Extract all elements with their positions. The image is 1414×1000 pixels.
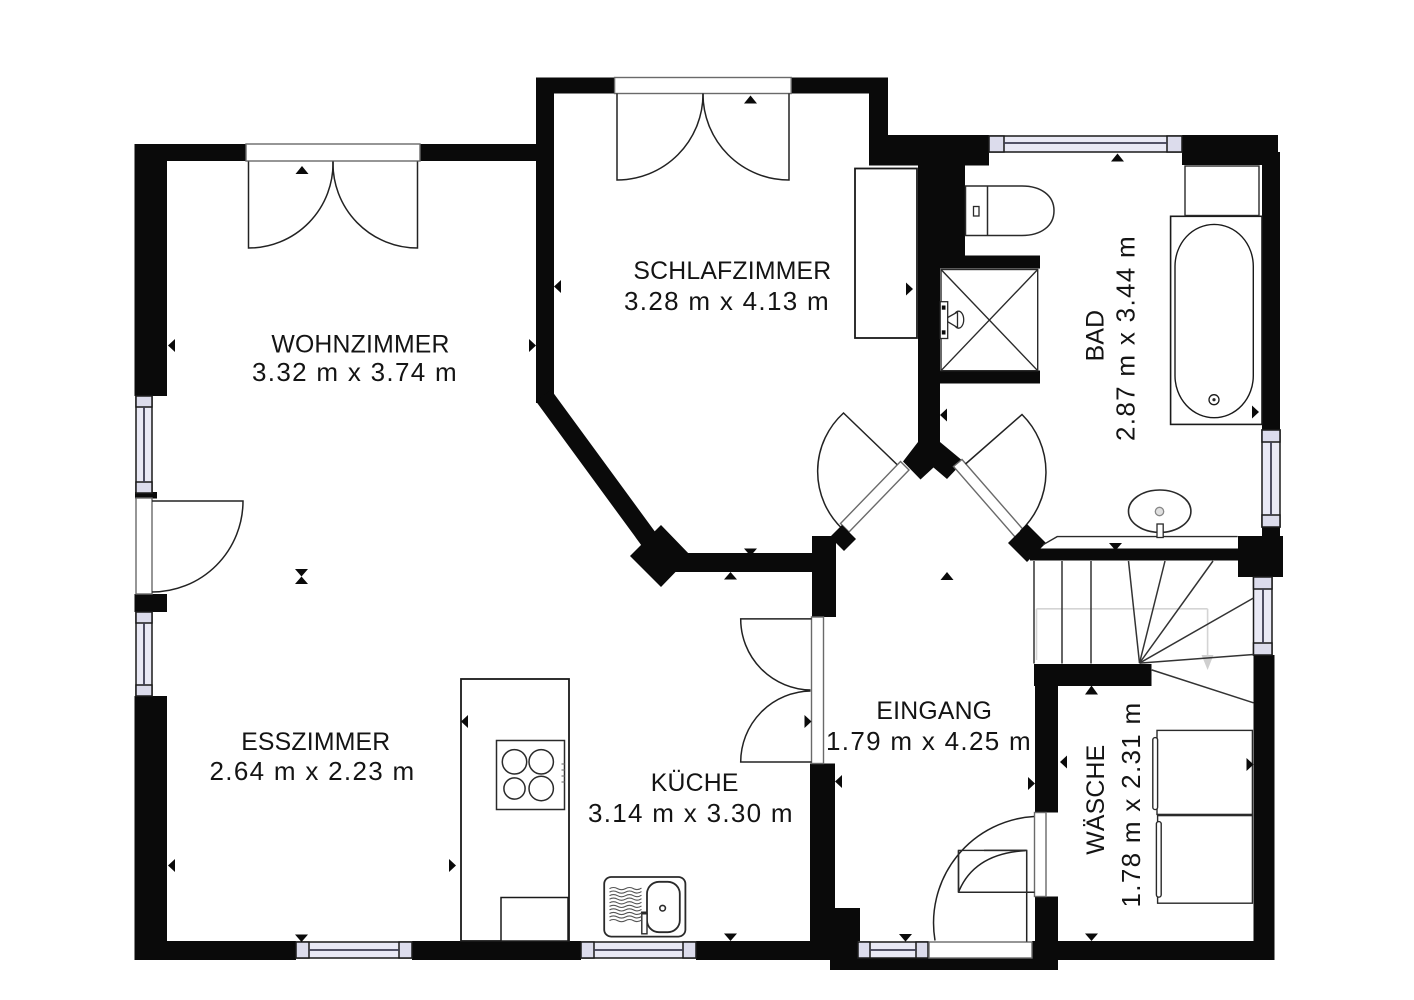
- svg-text:KÜCHE: KÜCHE: [651, 770, 739, 797]
- svg-text:ESSZIMMER: ESSZIMMER: [241, 729, 390, 756]
- svg-text:1.78 m x 2.31 m: 1.78 m x 2.31 m: [1116, 702, 1146, 908]
- svg-text:1.79 m x 4.25 m: 1.79 m x 4.25 m: [826, 726, 1032, 756]
- svg-text:2.64 m x 2.23 m: 2.64 m x 2.23 m: [210, 756, 416, 786]
- svg-text:3.32 m x 3.74 m: 3.32 m x 3.74 m: [252, 357, 458, 387]
- svg-text:SCHLAFZIMMER: SCHLAFZIMMER: [633, 258, 831, 285]
- svg-text:WOHNZIMMER: WOHNZIMMER: [271, 332, 449, 359]
- svg-text:3.14 m x 3.30 m: 3.14 m x 3.30 m: [588, 798, 794, 828]
- svg-text:3.28 m x 4.13 m: 3.28 m x 4.13 m: [624, 286, 830, 316]
- svg-text:BAD: BAD: [1083, 310, 1110, 362]
- svg-text:2.87 m x 3.44 m: 2.87 m x 3.44 m: [1111, 235, 1141, 441]
- svg-text:EINGANG: EINGANG: [876, 698, 992, 725]
- svg-text:WÄSCHE: WÄSCHE: [1083, 745, 1110, 855]
